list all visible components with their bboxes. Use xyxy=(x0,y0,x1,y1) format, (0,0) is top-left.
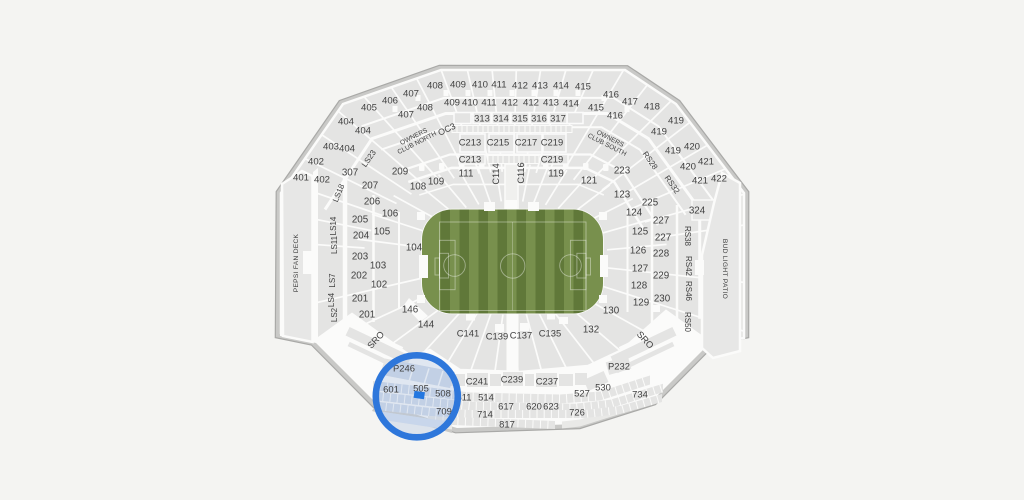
svg-text:419: 419 xyxy=(668,116,684,127)
svg-text:408: 408 xyxy=(417,103,433,114)
svg-text:C141: C141 xyxy=(457,328,479,339)
svg-text:201: 201 xyxy=(352,294,368,305)
svg-text:RS46: RS46 xyxy=(684,281,693,302)
svg-text:412: 412 xyxy=(523,98,539,109)
svg-text:726: 726 xyxy=(569,406,585,417)
svg-text:205: 205 xyxy=(352,215,369,226)
svg-text:C137: C137 xyxy=(510,330,532,341)
svg-text:617: 617 xyxy=(498,400,514,411)
svg-text:LS2: LS2 xyxy=(330,307,339,322)
svg-text:124: 124 xyxy=(626,208,643,219)
svg-text:416: 416 xyxy=(603,90,619,101)
svg-text:402: 402 xyxy=(308,157,324,168)
svg-text:108: 108 xyxy=(410,182,427,193)
svg-text:RS42: RS42 xyxy=(684,256,693,277)
svg-text:601: 601 xyxy=(383,383,399,394)
svg-text:P232: P232 xyxy=(608,360,630,371)
svg-text:413: 413 xyxy=(532,81,548,92)
svg-text:RS38: RS38 xyxy=(683,226,692,247)
svg-text:C215: C215 xyxy=(487,136,509,147)
svg-text:527: 527 xyxy=(574,387,590,398)
svg-text:419: 419 xyxy=(665,146,681,157)
svg-text:412: 412 xyxy=(512,81,528,92)
svg-text:130: 130 xyxy=(603,306,620,317)
svg-text:709: 709 xyxy=(436,405,452,416)
svg-text:404: 404 xyxy=(339,144,356,155)
svg-text:422: 422 xyxy=(711,174,727,185)
svg-text:620: 620 xyxy=(526,400,542,411)
svg-text:228: 228 xyxy=(653,249,670,260)
svg-text:126: 126 xyxy=(630,246,647,257)
svg-text:623: 623 xyxy=(543,400,559,411)
svg-text:405: 405 xyxy=(361,103,377,114)
svg-text:202: 202 xyxy=(351,271,367,282)
svg-text:316: 316 xyxy=(531,112,547,123)
svg-text:420: 420 xyxy=(680,162,696,173)
svg-text:209: 209 xyxy=(392,167,408,178)
svg-text:313: 313 xyxy=(474,112,490,123)
svg-text:414: 414 xyxy=(553,81,570,92)
svg-text:125: 125 xyxy=(632,227,649,238)
svg-text:LS11: LS11 xyxy=(330,235,339,254)
svg-text:530: 530 xyxy=(595,381,611,392)
svg-text:C241: C241 xyxy=(466,375,488,386)
svg-text:404: 404 xyxy=(338,117,355,128)
svg-text:BUD LIGHT PATIO: BUD LIGHT PATIO xyxy=(721,239,728,299)
svg-text:410: 410 xyxy=(462,98,478,109)
svg-text:414: 414 xyxy=(563,99,580,110)
svg-text:109: 109 xyxy=(428,177,444,188)
svg-text:411: 411 xyxy=(491,80,506,91)
svg-text:105: 105 xyxy=(374,227,391,238)
svg-text:C116: C116 xyxy=(516,162,526,183)
svg-text:132: 132 xyxy=(583,325,599,336)
svg-text:230: 230 xyxy=(654,294,671,305)
svg-text:409: 409 xyxy=(444,98,460,109)
svg-text:410: 410 xyxy=(472,80,488,91)
svg-text:206: 206 xyxy=(364,197,381,208)
svg-text:412: 412 xyxy=(502,98,518,109)
svg-text:307: 307 xyxy=(342,168,358,179)
svg-text:146: 146 xyxy=(402,305,419,316)
svg-text:714: 714 xyxy=(477,408,493,419)
svg-text:144: 144 xyxy=(418,320,435,331)
svg-text:227: 227 xyxy=(653,216,669,227)
svg-text:201: 201 xyxy=(359,310,375,321)
svg-text:104: 104 xyxy=(406,243,423,254)
svg-text:RS50: RS50 xyxy=(683,312,692,333)
svg-text:111: 111 xyxy=(459,169,474,180)
svg-text:508: 508 xyxy=(435,387,451,398)
svg-text:408: 408 xyxy=(427,81,443,92)
svg-text:119: 119 xyxy=(548,169,564,180)
svg-text:LS7: LS7 xyxy=(328,273,337,288)
svg-text:411: 411 xyxy=(481,98,496,109)
svg-text:203: 203 xyxy=(352,252,369,263)
svg-text:223: 223 xyxy=(614,166,631,177)
svg-text:207: 207 xyxy=(362,181,378,192)
svg-text:403: 403 xyxy=(323,142,339,153)
svg-text:C139: C139 xyxy=(486,331,508,342)
svg-text:402: 402 xyxy=(314,175,330,186)
svg-text:315: 315 xyxy=(512,112,528,123)
svg-text:416: 416 xyxy=(607,111,623,122)
svg-text:407: 407 xyxy=(403,89,419,100)
svg-text:225: 225 xyxy=(642,198,659,209)
svg-text:123: 123 xyxy=(614,190,631,201)
svg-text:127: 127 xyxy=(632,264,648,275)
svg-text:LS14: LS14 xyxy=(329,216,338,235)
svg-text:418: 418 xyxy=(644,102,660,113)
svg-text:C237: C237 xyxy=(536,375,558,386)
svg-text:C114: C114 xyxy=(491,163,501,184)
svg-text:204: 204 xyxy=(353,231,370,242)
svg-text:C239: C239 xyxy=(501,373,523,384)
svg-text:C213: C213 xyxy=(459,136,481,147)
svg-text:317: 317 xyxy=(550,112,566,123)
svg-text:C217: C217 xyxy=(515,136,537,147)
svg-text:417: 417 xyxy=(622,97,638,108)
svg-text:229: 229 xyxy=(653,271,669,282)
svg-text:404: 404 xyxy=(355,126,372,137)
svg-text:103: 103 xyxy=(370,261,387,272)
svg-text:LS4: LS4 xyxy=(327,292,336,307)
svg-text:129: 129 xyxy=(633,298,649,309)
svg-text:121: 121 xyxy=(581,176,597,187)
svg-text:128: 128 xyxy=(631,281,648,292)
svg-text:420: 420 xyxy=(684,142,700,153)
svg-text:C135: C135 xyxy=(539,328,561,339)
svg-text:413: 413 xyxy=(543,98,559,109)
svg-text:415: 415 xyxy=(588,103,604,114)
svg-text:C213: C213 xyxy=(459,153,481,164)
svg-text:PEPSI FAN DECK: PEPSI FAN DECK xyxy=(293,233,300,292)
svg-text:324: 324 xyxy=(689,206,706,217)
svg-text:227: 227 xyxy=(655,233,671,244)
svg-text:406: 406 xyxy=(382,96,398,107)
svg-text:817: 817 xyxy=(499,418,515,429)
svg-text:415: 415 xyxy=(575,82,591,93)
svg-text:C219: C219 xyxy=(541,153,563,164)
svg-text:C219: C219 xyxy=(541,136,563,147)
svg-text:734: 734 xyxy=(632,388,648,399)
svg-text:106: 106 xyxy=(382,209,399,220)
svg-text:421: 421 xyxy=(692,176,708,187)
svg-text:407: 407 xyxy=(398,110,414,121)
svg-text:514: 514 xyxy=(478,391,494,402)
svg-text:421: 421 xyxy=(698,157,714,168)
svg-text:401: 401 xyxy=(293,173,309,184)
svg-text:314: 314 xyxy=(493,112,509,123)
svg-text:102: 102 xyxy=(371,280,387,291)
svg-text:409: 409 xyxy=(450,80,466,91)
svg-text:419: 419 xyxy=(651,127,667,138)
